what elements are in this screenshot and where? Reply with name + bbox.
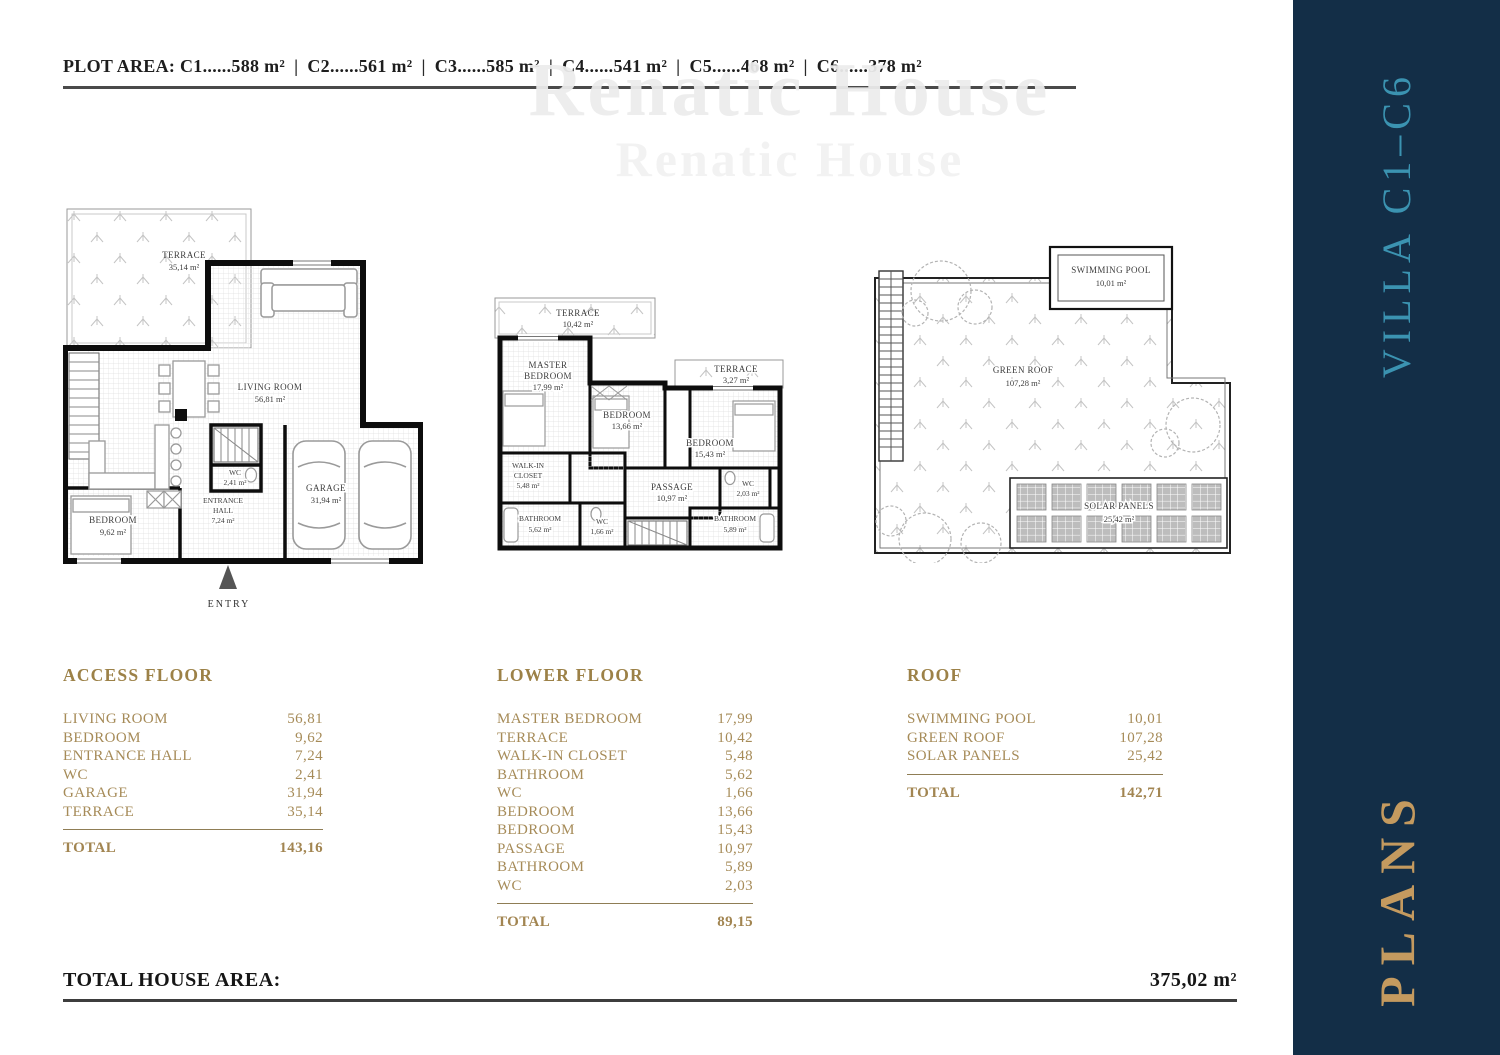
separator: | (667, 56, 689, 76)
svg-text:9,62 m²: 9,62 m² (100, 527, 127, 537)
plot-area-segment: C2......561 m² (307, 56, 412, 76)
wardrobe (147, 491, 181, 508)
svg-text:BATHROOM: BATHROOM (714, 514, 756, 523)
table-row: BATHROOM5,89 (497, 858, 753, 877)
dining-table (159, 361, 219, 417)
villa-title-wrap: VILLA C1–C6 (1293, 30, 1500, 420)
table-row: BEDROOM9,62 (63, 729, 323, 748)
table-row: MASTER BEDROOM17,99 (497, 710, 753, 729)
svg-text:TERRACE: TERRACE (714, 364, 758, 374)
page: PLOT AREA: C1......588 m²|C2......561 m²… (0, 0, 1500, 1055)
svg-text:25,42 m²: 25,42 m² (1104, 514, 1135, 524)
lower-floor-plan: TERRACE 10,42 m² MASTER BEDROOM 17,99 m²… (488, 296, 788, 562)
svg-text:WC: WC (229, 468, 241, 477)
roof-table: ROOF SWIMMING POOL10,01 GREEN ROOF107,28… (907, 665, 1163, 802)
table-title: ROOF (907, 665, 1163, 686)
plans-title-wrap: PLANS (1293, 760, 1500, 1035)
table-row: BATHROOM5,62 (497, 766, 753, 785)
entry-marker: ENTRY (208, 565, 251, 610)
separator: | (412, 56, 434, 76)
table-row: SOLAR PANELS25,42 (907, 747, 1163, 766)
table-title: LOWER FLOOR (497, 665, 753, 686)
svg-text:15,43 m²: 15,43 m² (695, 449, 726, 459)
svg-text:10,42 m²: 10,42 m² (563, 319, 594, 329)
svg-text:CLOSET: CLOSET (514, 471, 543, 480)
svg-text:SWIMMING POOL: SWIMMING POOL (1071, 265, 1150, 275)
svg-text:WC: WC (742, 479, 754, 488)
table-row: WC2,41 (63, 766, 323, 785)
svg-text:BEDROOM: BEDROOM (603, 410, 651, 420)
hall (570, 453, 625, 503)
svg-text:PASSAGE: PASSAGE (651, 482, 693, 492)
table-divider (497, 903, 753, 904)
plans-title: PLANS (1368, 788, 1426, 1007)
total-house-area: TOTAL HOUSE AREA: 375,02 m² (63, 969, 1237, 992)
svg-text:5,48 m²: 5,48 m² (516, 481, 540, 490)
access-floor-plan: TERRACE 35,14 m² LIVING ROOM 56,81 m² BE… (63, 203, 423, 615)
svg-text:GREEN ROOF: GREEN ROOF (993, 365, 1053, 375)
table-total-row: TOTAL142,71 (907, 784, 1163, 803)
svg-text:56,81 m²: 56,81 m² (255, 394, 286, 404)
svg-text:5,89 m²: 5,89 m² (723, 525, 747, 534)
svg-text:1,66 m²: 1,66 m² (590, 527, 614, 536)
svg-text:BEDROOM: BEDROOM (524, 371, 572, 381)
solar-panels (1010, 478, 1227, 548)
table-title: ACCESS FLOOR (63, 665, 323, 686)
roof-plan: SWIMMING POOL 10,01 m² GREEN ROOF 107,28… (863, 243, 1233, 563)
total-house-area-label: TOTAL HOUSE AREA: (63, 969, 281, 992)
table-row: LIVING ROOM56,81 (63, 710, 323, 729)
total-house-area-value: 375,02 m² (1150, 969, 1237, 992)
plot-area-segment: C3......585 m² (435, 56, 540, 76)
svg-text:HALL: HALL (213, 506, 233, 515)
table-total-row: TOTAL89,15 (497, 913, 753, 932)
plot-area-segment: C4......541 m² (562, 56, 667, 76)
watermark-line2: Renatic House (430, 128, 1150, 191)
table-row: GARAGE31,94 (63, 784, 323, 803)
svg-text:MASTER: MASTER (529, 360, 568, 370)
svg-text:7,24 m²: 7,24 m² (211, 516, 235, 525)
svg-text:2,03 m²: 2,03 m² (736, 489, 760, 498)
stairs (628, 521, 687, 545)
table-row: WC1,66 (497, 784, 753, 803)
table-row: TERRACE10,42 (497, 729, 753, 748)
access-floor-table: ACCESS FLOOR LIVING ROOM56,81 BEDROOM9,6… (63, 665, 323, 858)
svg-text:BATHROOM: BATHROOM (519, 514, 561, 523)
svg-text:WALK-IN: WALK-IN (512, 461, 545, 470)
plot-area-header: PLOT AREA: C1......588 m²|C2......561 m²… (63, 56, 1078, 77)
svg-text:17,99 m²: 17,99 m² (533, 382, 564, 392)
plot-area-segment: C5......468 m² (689, 56, 794, 76)
footer-underline (63, 999, 1237, 1002)
svg-text:5,62 m²: 5,62 m² (528, 525, 552, 534)
lower-floor-table: LOWER FLOOR MASTER BEDROOM17,99 TERRACE1… (497, 665, 753, 932)
plot-area-label: PLOT AREA: (63, 56, 175, 76)
svg-text:BEDROOM: BEDROOM (686, 438, 734, 448)
svg-text:10,97 m²: 10,97 m² (657, 493, 688, 503)
plot-area-segment: C6......378 m² (817, 56, 922, 76)
table-row: WC2,03 (497, 877, 753, 896)
table-row: BEDROOM15,43 (497, 821, 753, 840)
column (175, 409, 187, 421)
svg-text:107,28 m²: 107,28 m² (1006, 378, 1041, 388)
sofa (261, 269, 357, 317)
svg-text:13,66 m²: 13,66 m² (612, 421, 643, 431)
toilet (246, 468, 257, 482)
svg-text:TERRACE: TERRACE (556, 308, 600, 318)
table-row: WALK-IN CLOSET5,48 (497, 747, 753, 766)
table-row: BEDROOM13,66 (497, 803, 753, 822)
svg-text:LIVING ROOM: LIVING ROOM (238, 382, 303, 392)
svg-text:35,14 m²: 35,14 m² (169, 262, 200, 272)
svg-text:2,41 m²: 2,41 m² (223, 478, 247, 487)
table-row: GREEN ROOF107,28 (907, 729, 1163, 748)
table-row: SWIMMING POOL10,01 (907, 710, 1163, 729)
header-underline (63, 86, 1076, 89)
table-row: PASSAGE10,97 (497, 840, 753, 859)
svg-text:WC: WC (596, 517, 608, 526)
svg-text:TERRACE: TERRACE (162, 250, 206, 260)
villa-title: VILLA C1–C6 (1373, 71, 1420, 378)
bed (71, 496, 131, 554)
table-divider (63, 829, 323, 830)
table-row: ENTRANCE HALL7,24 (63, 747, 323, 766)
table-divider (907, 774, 1163, 775)
separator: | (795, 56, 817, 76)
sidebar: VILLA C1–C6 PLANS (1293, 0, 1500, 1055)
svg-text:3,27 m²: 3,27 m² (723, 375, 750, 385)
stairs (879, 271, 903, 461)
svg-text:ENTRY: ENTRY (208, 599, 251, 610)
svg-text:10,01 m²: 10,01 m² (1096, 278, 1127, 288)
svg-text:ENTRANCE: ENTRANCE (203, 496, 243, 505)
svg-text:BEDROOM: BEDROOM (89, 515, 137, 525)
svg-text:GARAGE: GARAGE (306, 483, 346, 493)
table-row: TERRACE35,14 (63, 803, 323, 822)
svg-text:SOLAR PANELS: SOLAR PANELS (1084, 501, 1154, 511)
separator: | (285, 56, 307, 76)
stairs (214, 428, 258, 462)
separator: | (540, 56, 562, 76)
table-total-row: TOTAL143,16 (63, 839, 323, 858)
svg-text:31,94 m²: 31,94 m² (311, 495, 342, 505)
plot-area-segment: C1......588 m² (180, 56, 285, 76)
